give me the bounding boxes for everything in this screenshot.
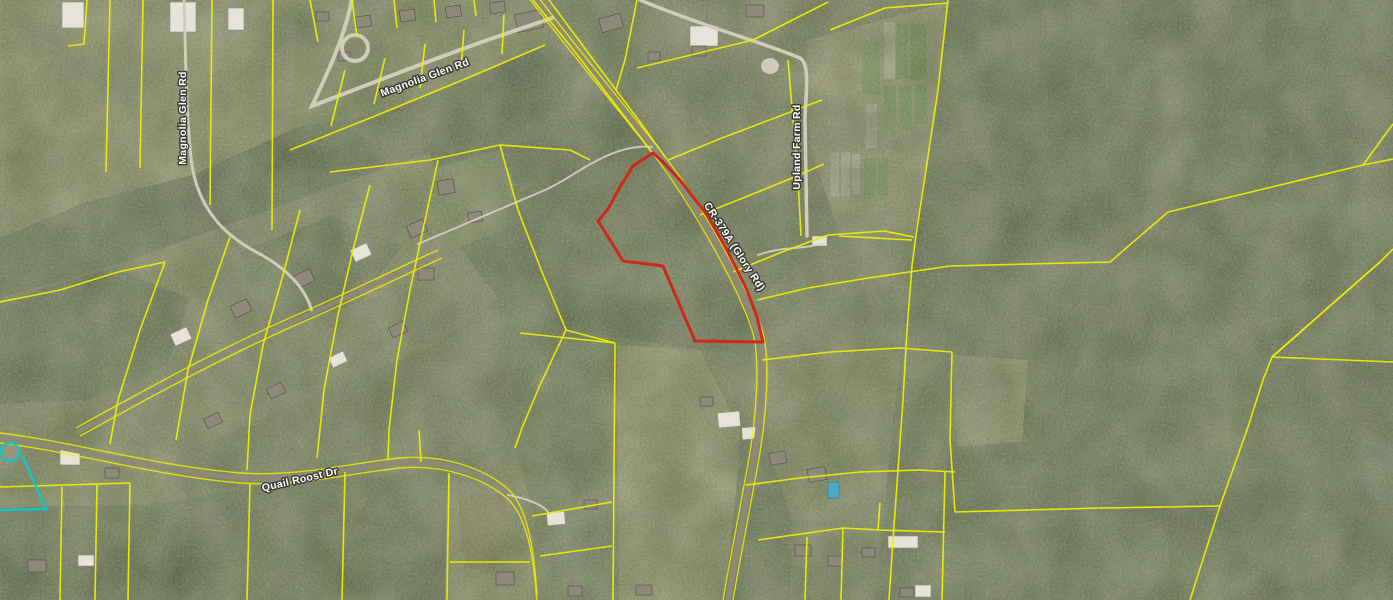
map-canvas[interactable]: Magnolia Glen Rd Magnolia Glen Rd CR-379… — [0, 0, 1393, 600]
aerial-parcel-map[interactable]: Magnolia Glen Rd Magnolia Glen Rd CR-379… — [0, 0, 1393, 600]
imagery-texture — [0, 0, 1393, 600]
round-structure — [761, 58, 779, 74]
road-label-magnolia-glen-rd-left: Magnolia Glen Rd — [177, 71, 189, 164]
road-label-upland-farm-rd: Upland Farm Rd — [791, 104, 803, 189]
